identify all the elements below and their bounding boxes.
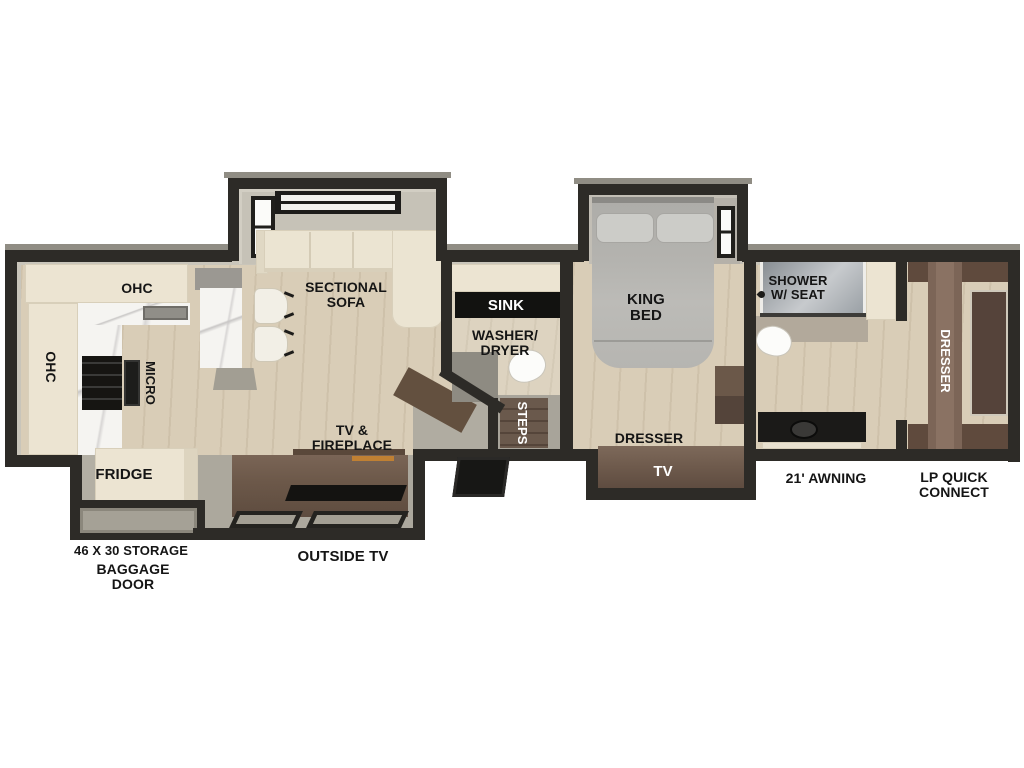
- label-fridge: FRIDGE: [64, 467, 184, 483]
- range-cooktop: [82, 356, 122, 410]
- living-slide-wall-left: [228, 178, 239, 261]
- bedroom-slide-wall-left: [578, 184, 589, 261]
- vanity-sink: [790, 420, 818, 439]
- label-king-bed: KINGBED: [586, 292, 706, 324]
- label-bedroom-dresser: DRESSER: [589, 431, 709, 446]
- wall-front-divider-top: [896, 261, 907, 321]
- wall-top-right: [742, 250, 1020, 262]
- bedroom-slide-wall-right: [737, 184, 748, 261]
- kitchen-peninsula-gray: [195, 268, 242, 290]
- label-micro: MICRO: [143, 353, 157, 413]
- label-storage: 46 X 30 STORAGE: [41, 544, 221, 558]
- wall-left: [5, 250, 17, 467]
- bed-step-nightstand-bottom: [715, 396, 745, 424]
- label-closet-dresser: DRESSER: [938, 321, 952, 401]
- tv-screen: [285, 485, 407, 501]
- bed-pillow-right: [656, 213, 714, 243]
- living-slide-wall-right: [436, 178, 447, 261]
- rv-floorplan: OHC OHC MICRO FRIDGE SECTIONALSOFA TV &F…: [0, 0, 1024, 768]
- kitchen-island-base: [213, 368, 257, 390]
- living-bottom-window-2: [306, 511, 409, 528]
- label-sectional-sofa: SECTIONALSOFA: [286, 280, 406, 310]
- bedroom-slide-wall-top: [578, 184, 748, 195]
- label-awning: 21' AWNING: [746, 471, 906, 486]
- sofa-seam-2: [352, 232, 354, 270]
- skylight-slat-2: [281, 204, 395, 210]
- wall-right: [1008, 250, 1020, 462]
- bed-bay-wall-bottom: [586, 488, 756, 500]
- label-baggage-door: BAGGAGEDOOR: [43, 562, 223, 592]
- bed-blanket-line: [594, 340, 712, 342]
- label-washer-dryer: WASHER/DRYER: [445, 328, 565, 358]
- bed-step-nightstand-top: [715, 366, 745, 396]
- label-shower: SHOWERW/ SEAT: [738, 274, 858, 302]
- skylight-slat-1: [281, 195, 395, 201]
- wall-living-bottom: [193, 528, 425, 540]
- storage-bay-door: [80, 508, 197, 533]
- label-outside-tv: OUTSIDE TV: [263, 549, 423, 565]
- living-bottom-window-2-pane: [313, 515, 402, 524]
- fireplace-glow: [352, 456, 394, 461]
- sofa-seat-edge: [264, 268, 396, 271]
- label-bedroom-tv: TV: [603, 464, 723, 480]
- bed-pillow-left: [596, 213, 654, 243]
- kitchen-island-counter: [200, 288, 242, 368]
- linen-cabinet: [866, 258, 896, 320]
- living-bottom-window-1: [229, 511, 303, 528]
- wall-entry-step: [413, 449, 425, 540]
- label-ohc-top: OHC: [77, 281, 197, 296]
- kitchen-cooktop: [143, 306, 188, 320]
- vanity-base: [762, 442, 862, 449]
- bath-overhead-cabinet: [448, 264, 562, 292]
- wall-right-bottom: [744, 449, 1020, 461]
- microwave: [124, 360, 140, 406]
- living-bottom-window-1-pane: [236, 515, 296, 524]
- shower-glass-edge: [760, 313, 866, 317]
- label-steps: STEPS: [515, 393, 529, 453]
- sectional-sofa-back: [264, 230, 396, 272]
- wall-steps-left: [488, 398, 498, 449]
- sofa-seam-1: [309, 232, 311, 270]
- label-ohc-left: OHC: [44, 337, 58, 397]
- living-slide-wall-top: [228, 178, 447, 189]
- wall-front-divider-bottom: [896, 420, 907, 449]
- wall-top-left: [5, 250, 232, 262]
- label-tv-fireplace: TV &FIREPLACE: [292, 423, 412, 453]
- label-sink: SINK: [446, 298, 566, 314]
- bedroom-slide-window: [717, 206, 735, 258]
- closet-mirror-panel: [970, 290, 1008, 416]
- entry-door: [452, 457, 510, 497]
- label-lp-quick-connect: LP QUICKCONNECT: [894, 470, 1014, 500]
- bedroom-slide-window-pane: [721, 210, 731, 254]
